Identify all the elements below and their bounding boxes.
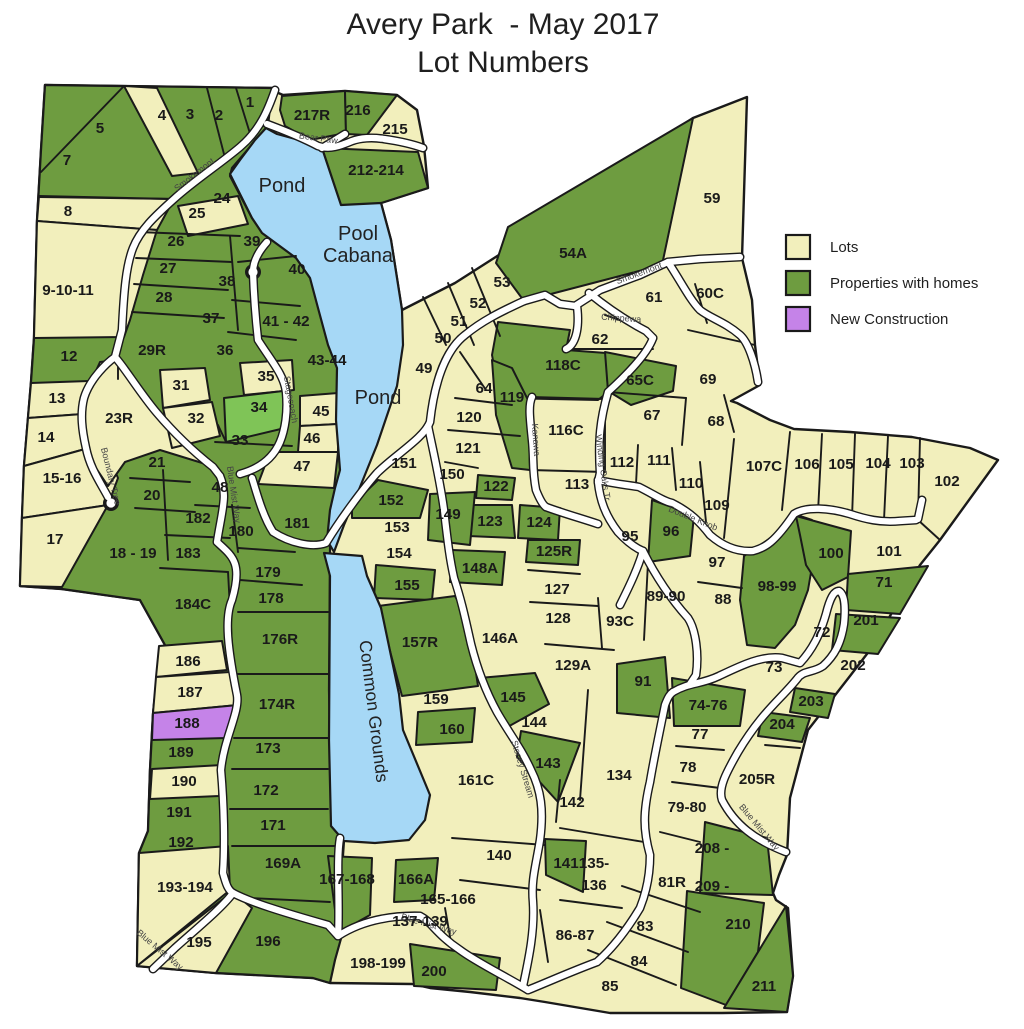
svg-text:Pond: Pond — [259, 175, 306, 197]
svg-text:188: 188 — [174, 715, 199, 732]
svg-text:111: 111 — [647, 452, 671, 469]
svg-text:1: 1 — [246, 94, 255, 111]
svg-text:142: 142 — [559, 794, 584, 811]
svg-text:73: 73 — [766, 659, 783, 676]
svg-text:113: 113 — [565, 476, 590, 493]
svg-text:134: 134 — [606, 767, 632, 784]
svg-text:161C: 161C — [458, 772, 494, 789]
svg-text:17: 17 — [47, 531, 64, 548]
svg-text:12: 12 — [61, 348, 78, 365]
svg-text:120: 120 — [456, 409, 481, 426]
svg-text:98-99: 98-99 — [758, 578, 797, 595]
svg-text:Lot Numbers: Lot Numbers — [417, 46, 589, 79]
svg-text:59: 59 — [704, 190, 721, 207]
svg-text:45: 45 — [313, 403, 330, 420]
svg-text:208 -: 208 - — [695, 840, 730, 857]
svg-text:150: 150 — [439, 466, 464, 483]
svg-text:50: 50 — [435, 330, 452, 347]
svg-text:187: 187 — [177, 684, 202, 701]
svg-text:62: 62 — [592, 331, 609, 348]
svg-text:47: 47 — [294, 458, 311, 475]
svg-text:137-139: 137-139 — [392, 913, 448, 930]
svg-text:43-44: 43-44 — [308, 352, 347, 369]
svg-text:216: 216 — [345, 102, 370, 119]
svg-text:149: 149 — [435, 506, 460, 523]
svg-text:53: 53 — [494, 274, 511, 291]
svg-text:24: 24 — [214, 190, 231, 207]
svg-text:101: 101 — [876, 543, 902, 560]
svg-text:68: 68 — [708, 413, 725, 430]
svg-text:172: 172 — [253, 782, 278, 799]
svg-text:21: 21 — [149, 454, 166, 471]
svg-text:5: 5 — [96, 120, 105, 137]
svg-text:8: 8 — [64, 203, 72, 220]
svg-text:84: 84 — [631, 953, 648, 970]
svg-text:192: 192 — [168, 834, 193, 851]
svg-text:124: 124 — [526, 514, 552, 531]
svg-text:52: 52 — [470, 295, 487, 312]
svg-text:31: 31 — [173, 377, 190, 394]
svg-text:128: 128 — [545, 610, 570, 627]
svg-text:106: 106 — [794, 456, 819, 473]
svg-text:91: 91 — [635, 673, 652, 690]
svg-text:171: 171 — [260, 817, 286, 834]
svg-text:37: 37 — [203, 310, 220, 327]
svg-text:166A: 166A — [398, 871, 434, 888]
svg-text:159: 159 — [423, 691, 448, 708]
svg-text:23R: 23R — [105, 410, 133, 427]
svg-text:20: 20 — [144, 487, 161, 504]
svg-text:81R: 81R — [658, 874, 686, 891]
svg-text:165-166: 165-166 — [420, 891, 476, 908]
svg-text:64: 64 — [476, 380, 493, 397]
svg-text:121: 121 — [455, 440, 481, 457]
svg-text:210: 210 — [725, 916, 750, 933]
svg-text:179: 179 — [255, 564, 280, 581]
svg-text:72: 72 — [814, 624, 831, 641]
svg-text:193-194: 193-194 — [157, 879, 213, 896]
svg-text:116C: 116C — [548, 422, 584, 439]
svg-text:148A: 148A — [462, 560, 498, 577]
svg-text:51: 51 — [451, 313, 468, 330]
svg-text:151: 151 — [391, 455, 417, 472]
svg-text:154: 154 — [386, 545, 412, 562]
svg-text:96: 96 — [663, 523, 680, 540]
svg-text:85: 85 — [602, 978, 619, 995]
svg-text:215: 215 — [382, 121, 408, 138]
svg-text:153: 153 — [384, 519, 409, 536]
svg-text:160: 160 — [439, 721, 464, 738]
svg-text:25: 25 — [189, 205, 206, 222]
svg-text:28: 28 — [156, 289, 173, 306]
svg-text:200: 200 — [421, 963, 446, 980]
svg-text:201: 201 — [853, 612, 879, 629]
svg-text:112: 112 — [610, 454, 635, 471]
svg-text:180: 180 — [228, 523, 253, 540]
svg-text:4: 4 — [158, 107, 167, 124]
svg-text:3: 3 — [186, 106, 194, 123]
svg-text:78: 78 — [680, 759, 697, 776]
svg-text:125R: 125R — [536, 543, 572, 560]
svg-text:29R: 29R — [138, 342, 166, 359]
svg-text:Properties with homes: Properties with homes — [830, 275, 978, 292]
svg-text:Pool: Pool — [338, 223, 378, 245]
svg-text:181: 181 — [284, 515, 310, 532]
svg-text:38: 38 — [219, 273, 236, 290]
svg-text:211: 211 — [752, 978, 777, 995]
svg-text:83: 83 — [637, 918, 654, 935]
svg-text:14: 14 — [38, 429, 55, 446]
svg-text:41 - 42: 41 - 42 — [262, 313, 309, 330]
svg-text:123: 123 — [477, 513, 502, 530]
svg-text:203: 203 — [798, 693, 823, 710]
svg-text:109: 109 — [704, 497, 729, 514]
svg-text:69: 69 — [700, 371, 717, 388]
svg-text:7: 7 — [63, 152, 71, 169]
svg-text:143: 143 — [535, 755, 560, 772]
svg-text:152: 152 — [378, 492, 403, 509]
svg-text:2: 2 — [215, 107, 223, 124]
svg-text:205R: 205R — [739, 771, 775, 788]
svg-text:169A: 169A — [265, 855, 301, 872]
svg-text:136: 136 — [581, 877, 606, 894]
svg-text:77: 77 — [692, 726, 709, 743]
svg-text:178: 178 — [258, 590, 283, 607]
svg-text:119: 119 — [500, 389, 525, 406]
svg-text:102: 102 — [934, 473, 959, 490]
svg-text:65C: 65C — [626, 372, 654, 389]
svg-text:202: 202 — [840, 657, 865, 674]
svg-text:186: 186 — [175, 653, 200, 670]
svg-text:107C: 107C — [746, 458, 782, 475]
svg-text:34: 34 — [251, 399, 268, 416]
svg-text:9-10-11: 9-10-11 — [42, 282, 94, 299]
svg-text:189: 189 — [168, 744, 193, 761]
svg-text:86-87: 86-87 — [556, 927, 595, 944]
svg-text:204: 204 — [769, 716, 795, 733]
svg-text:49: 49 — [416, 360, 433, 377]
svg-text:144: 144 — [521, 714, 547, 731]
svg-text:88: 88 — [715, 591, 732, 608]
svg-text:173: 173 — [255, 740, 280, 757]
svg-text:Avery Park - May 2017: Avery Park - May 2017 — [347, 8, 660, 41]
svg-text:Lots: Lots — [830, 239, 858, 256]
svg-text:33: 33 — [232, 432, 249, 449]
svg-text:15-16: 15-16 — [43, 470, 82, 487]
svg-text:48: 48 — [212, 479, 229, 496]
svg-text:190: 190 — [171, 773, 196, 790]
svg-text:54A: 54A — [559, 245, 587, 262]
svg-text:61: 61 — [646, 289, 663, 306]
svg-text:135-: 135- — [579, 855, 609, 872]
svg-text:174R: 174R — [259, 696, 295, 713]
svg-text:103: 103 — [899, 455, 924, 472]
svg-text:67: 67 — [644, 407, 661, 424]
svg-text:145: 145 — [500, 689, 526, 706]
svg-text:184C: 184C — [175, 596, 211, 613]
svg-text:212-214: 212-214 — [348, 162, 404, 179]
svg-text:167-168: 167-168 — [319, 871, 375, 888]
svg-text:93C: 93C — [606, 613, 634, 630]
svg-text:209 -: 209 - — [695, 878, 730, 895]
svg-text:13: 13 — [49, 390, 66, 407]
svg-text:217R: 217R — [294, 107, 330, 124]
svg-text:95: 95 — [622, 528, 639, 545]
svg-text:183: 183 — [175, 545, 200, 562]
svg-text:104: 104 — [865, 455, 891, 472]
svg-text:198-199: 198-199 — [350, 955, 406, 972]
svg-text:157R: 157R — [402, 634, 438, 651]
svg-text:140: 140 — [486, 847, 511, 864]
svg-text:39: 39 — [244, 233, 261, 250]
svg-text:27: 27 — [160, 260, 177, 277]
svg-text:118C: 118C — [545, 357, 581, 374]
svg-text:100: 100 — [818, 545, 843, 562]
svg-text:155: 155 — [394, 577, 420, 594]
svg-text:141: 141 — [553, 855, 579, 872]
svg-text:26: 26 — [168, 233, 185, 250]
svg-text:18 - 19: 18 - 19 — [109, 545, 156, 562]
svg-text:127: 127 — [544, 581, 569, 598]
svg-text:122: 122 — [483, 478, 508, 495]
svg-text:176R: 176R — [262, 631, 298, 648]
svg-text:Pond: Pond — [355, 387, 402, 409]
svg-text:89-90: 89-90 — [647, 588, 686, 605]
svg-text:105: 105 — [828, 456, 854, 473]
svg-text:74-76: 74-76 — [689, 697, 728, 714]
svg-text:Cabana: Cabana — [323, 245, 394, 267]
svg-text:196: 196 — [255, 933, 280, 950]
svg-text:40: 40 — [289, 261, 306, 278]
svg-text:129A: 129A — [555, 657, 591, 674]
svg-text:97: 97 — [709, 554, 726, 571]
svg-text:146A: 146A — [482, 630, 518, 647]
svg-text:46: 46 — [304, 430, 321, 447]
svg-text:36: 36 — [217, 342, 234, 359]
svg-text:195: 195 — [186, 934, 212, 951]
svg-text:New Construction: New Construction — [830, 311, 948, 328]
svg-text:60C: 60C — [696, 285, 724, 302]
svg-text:79-80: 79-80 — [668, 799, 707, 816]
svg-text:182: 182 — [185, 510, 210, 527]
svg-text:32: 32 — [188, 410, 205, 427]
svg-text:110: 110 — [679, 475, 704, 492]
svg-text:71: 71 — [876, 574, 893, 591]
svg-text:191: 191 — [166, 804, 192, 821]
svg-text:35: 35 — [258, 368, 275, 385]
